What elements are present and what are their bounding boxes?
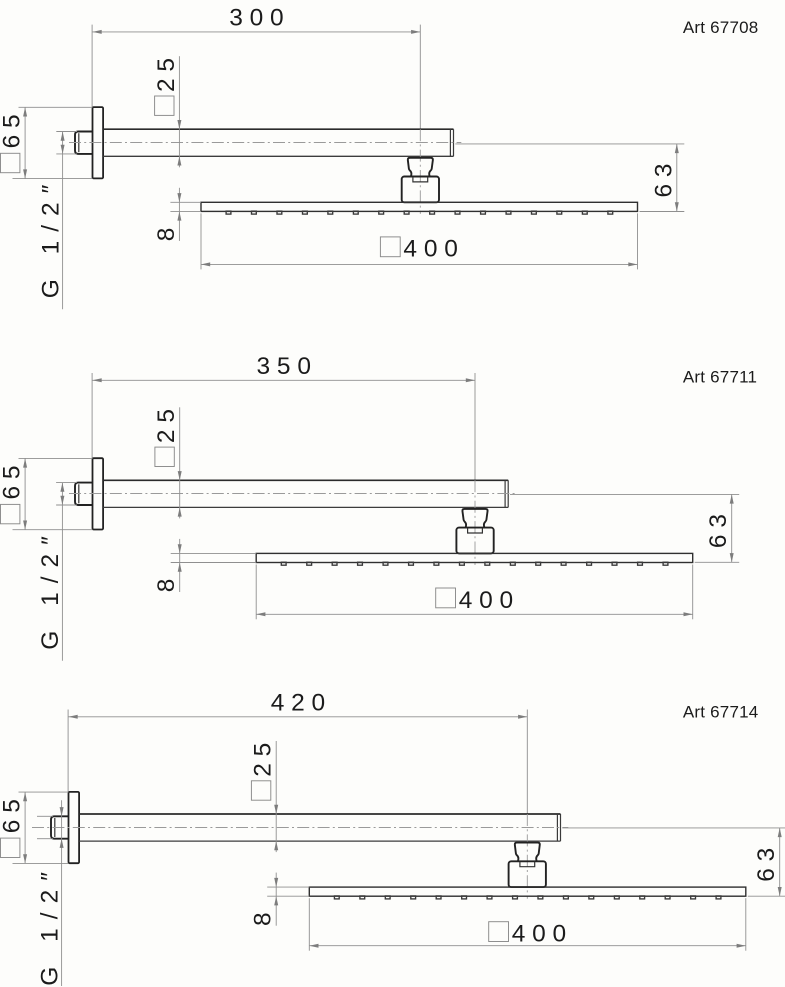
svg-text:25: 25: [250, 736, 277, 777]
svg-text:Art 67714: Art 67714: [683, 703, 759, 722]
svg-text:300: 300: [229, 5, 290, 32]
svg-text:25: 25: [153, 51, 180, 92]
svg-text:63: 63: [753, 841, 780, 882]
svg-text:Art 67711: Art 67711: [683, 368, 757, 387]
svg-text:G 1/2″: G 1/2″: [37, 527, 64, 650]
svg-text:G 1/2″: G 1/2″: [36, 863, 63, 986]
svg-text:8: 8: [250, 906, 277, 926]
svg-text:400: 400: [512, 921, 573, 948]
svg-text:400: 400: [459, 587, 520, 614]
svg-text:65: 65: [0, 108, 25, 149]
svg-text:25: 25: [153, 402, 180, 443]
svg-text:8: 8: [153, 572, 180, 592]
svg-text:65: 65: [0, 459, 25, 500]
svg-text:63: 63: [650, 157, 677, 198]
svg-text:350: 350: [257, 353, 318, 380]
svg-text:420: 420: [271, 690, 332, 717]
svg-text:400: 400: [403, 236, 464, 263]
svg-text:8: 8: [153, 221, 180, 241]
svg-text:Art 67708: Art 67708: [683, 18, 759, 37]
svg-text:G 1/2″: G 1/2″: [37, 176, 64, 299]
svg-text:63: 63: [705, 507, 732, 548]
svg-text:65: 65: [0, 792, 25, 833]
